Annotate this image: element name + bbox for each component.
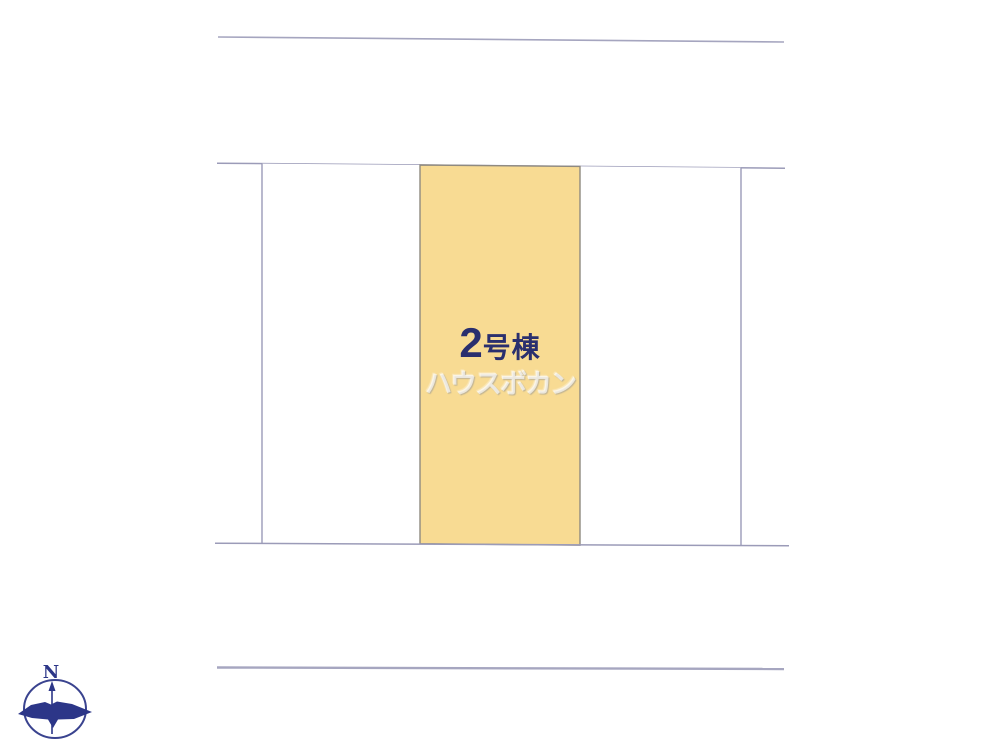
parcel-left [262,164,420,544]
road-edge-line-bottom [217,668,784,670]
compass-north-indicator: N [18,662,92,738]
site-plan-drawing: N [0,0,1000,750]
road-edge-line-top [218,37,784,42]
lot-number: 2 [459,322,482,364]
parcel-right [580,166,741,545]
lot-label: 2号棟 [420,322,580,372]
site-plan-canvas: N 2号棟 ハウスボカン [0,0,1000,750]
compass-north-label: N [43,662,59,683]
lot-suffix: 号棟 [483,334,541,362]
